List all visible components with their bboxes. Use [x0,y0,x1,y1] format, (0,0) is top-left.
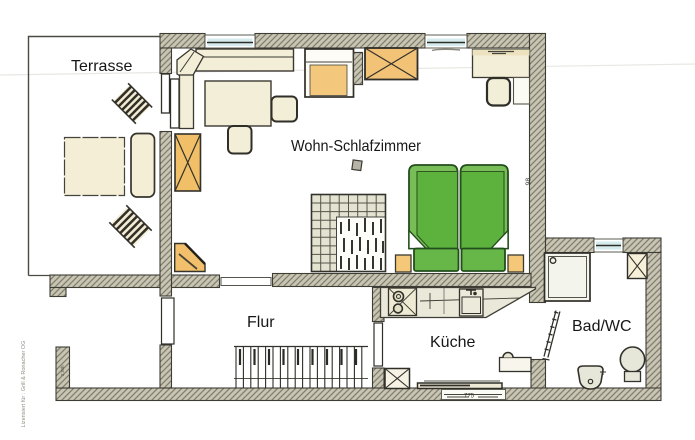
svg-text:Terrasse: Terrasse [71,58,132,75]
svg-text:2.Wh: 2.Wh [60,365,65,376]
svg-text:98: 98 [526,178,533,186]
svg-text:Flur: Flur [247,314,275,331]
svg-text:Wohn-Schlafzimmer: Wohn-Schlafzimmer [291,138,422,155]
svg-text:Küche: Küche [430,334,475,351]
svg-text:Bad/WC: Bad/WC [572,318,632,335]
svg-text:Lizensiert für : Grill & Ronac: Lizensiert für : Grill & Ronacher OG [21,341,27,428]
svg-text:775: 775 [464,394,475,400]
